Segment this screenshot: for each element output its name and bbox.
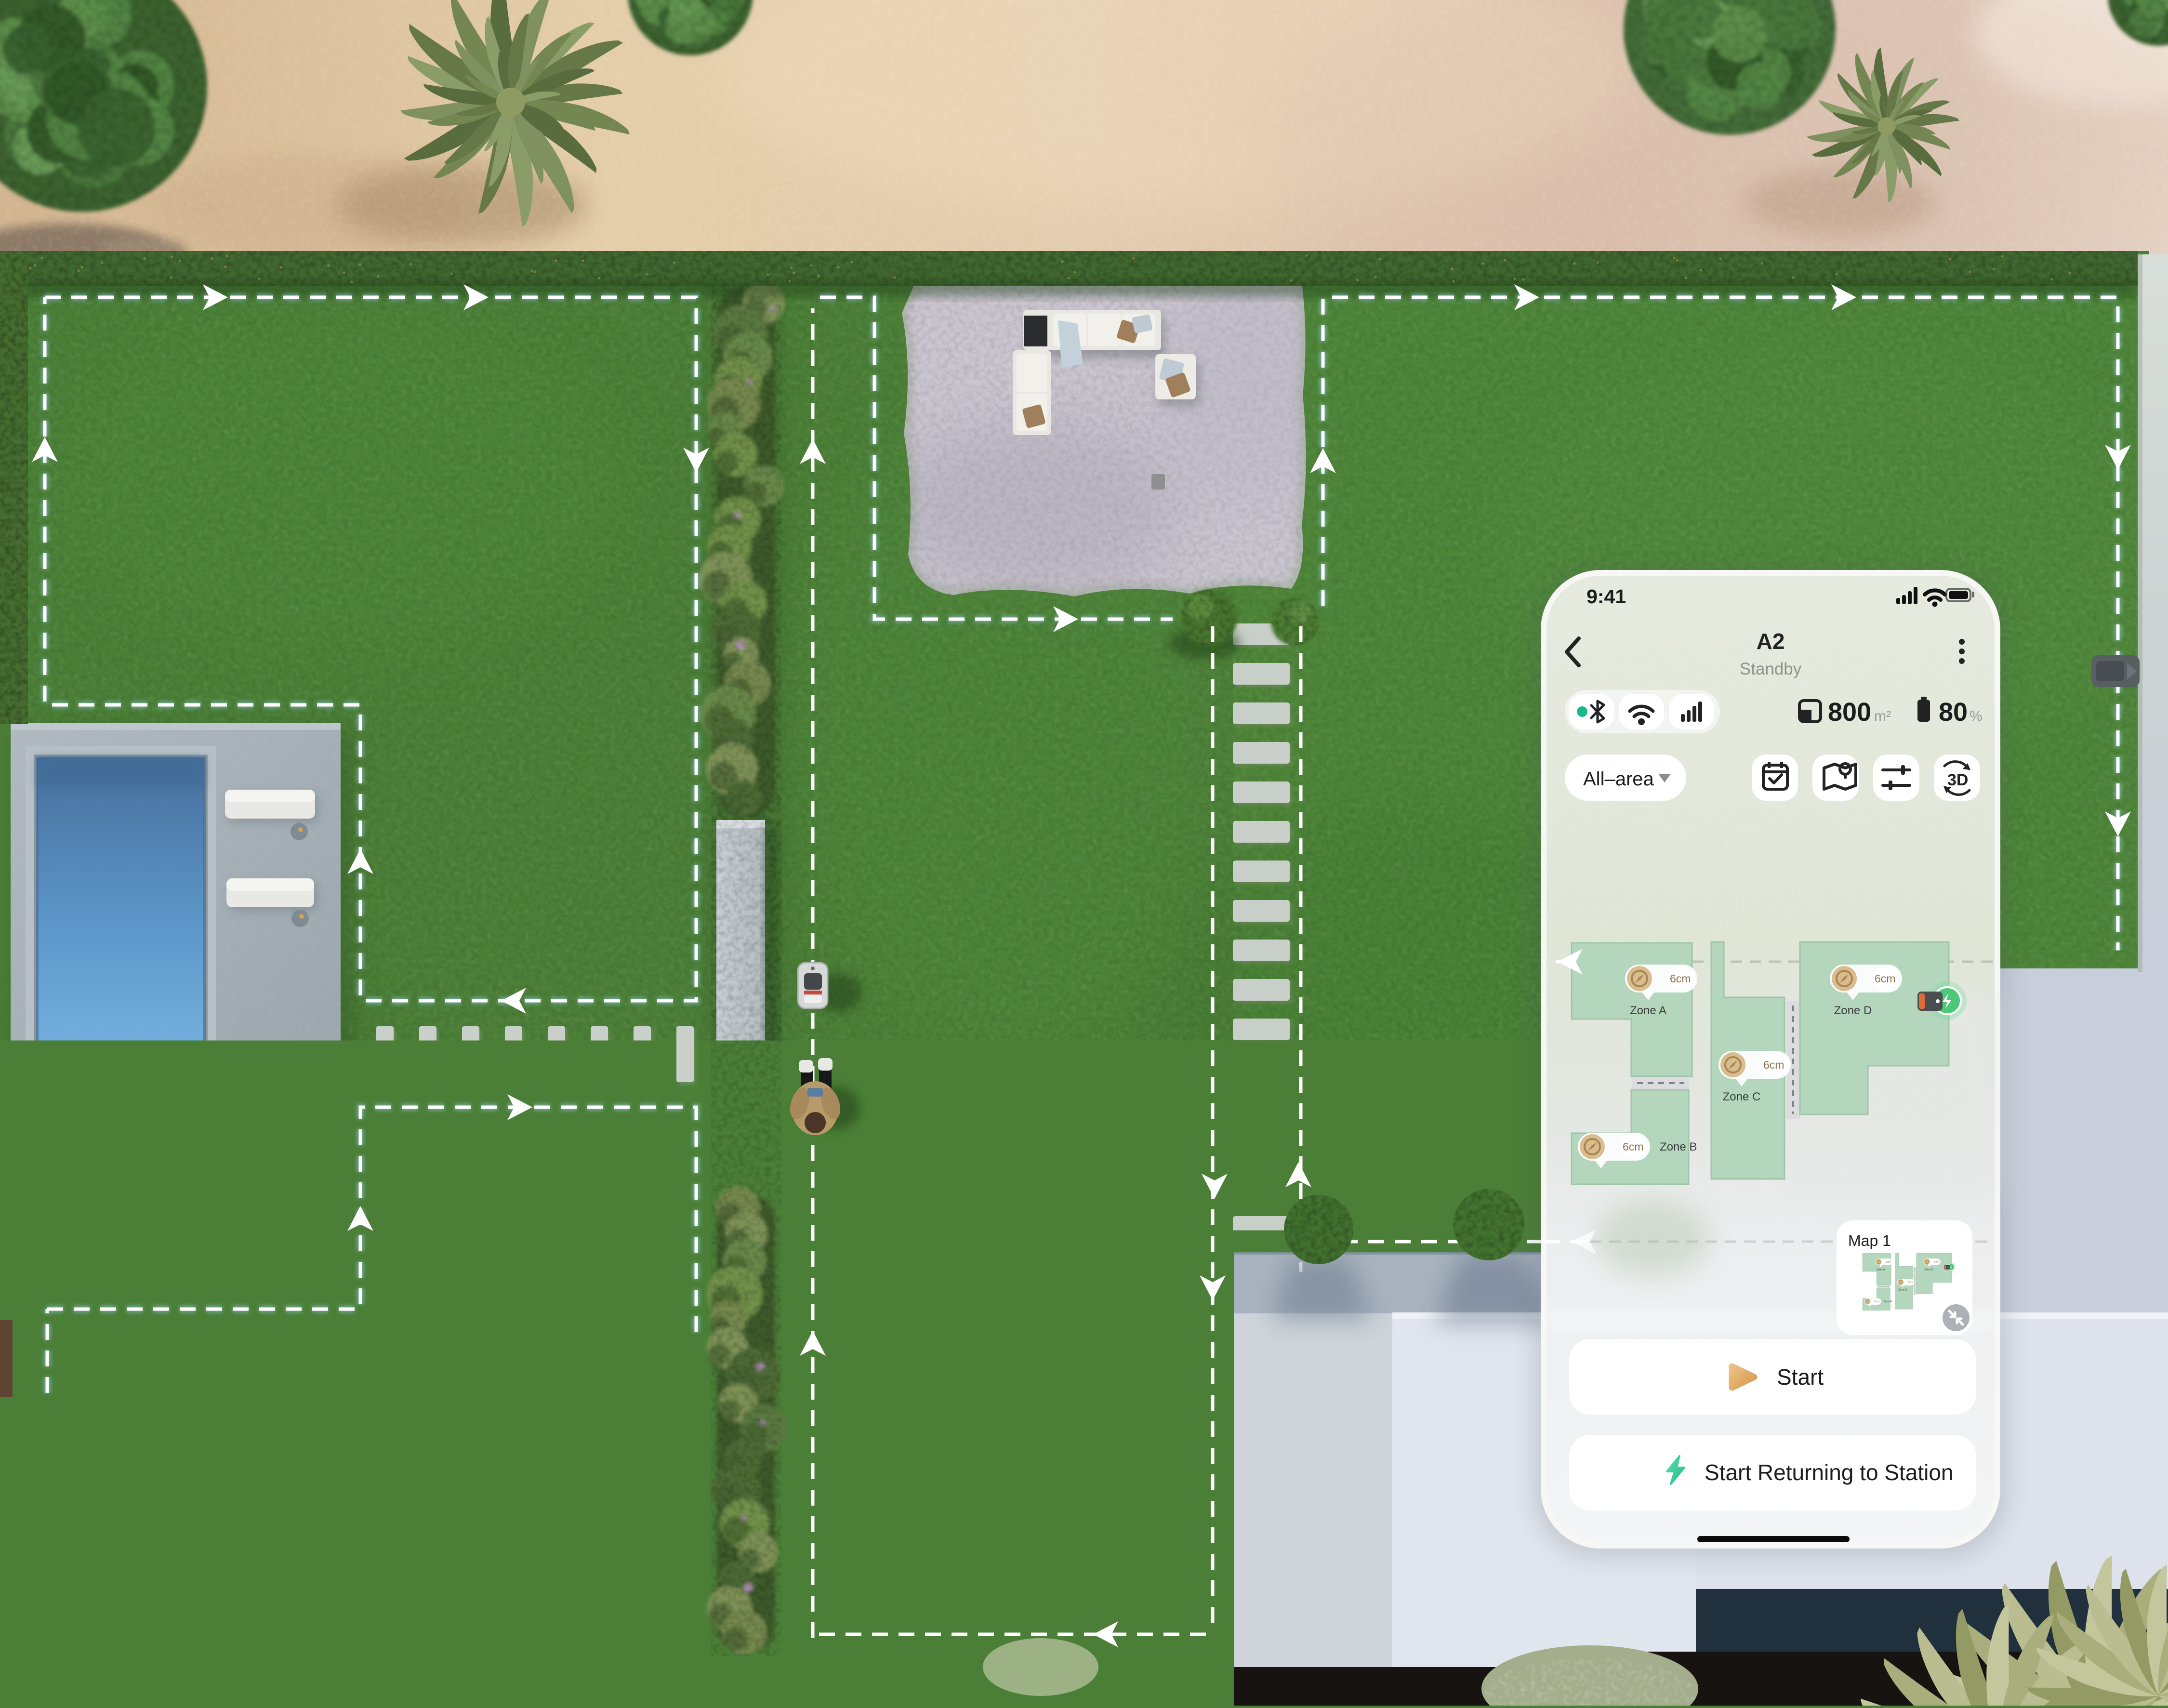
svg-text:Start Returning to Station: Start Returning to Station — [1705, 1460, 1954, 1485]
svg-text:Zone B: Zone B — [1660, 1140, 1697, 1153]
svg-text:3D: 3D — [1947, 771, 1968, 789]
svg-text:6cm: 6cm — [1763, 1059, 1784, 1071]
svg-text:Map 1: Map 1 — [1848, 1232, 1891, 1249]
svg-text:%: % — [1970, 708, 1983, 724]
svg-text:80: 80 — [1939, 698, 1968, 727]
svg-text:Zone C: Zone C — [1723, 1090, 1761, 1103]
svg-text:m²: m² — [1874, 708, 1891, 724]
svg-text:Standby: Standby — [1740, 660, 1802, 678]
svg-text:A2: A2 — [1757, 629, 1785, 654]
svg-text:All–area: All–area — [1583, 768, 1654, 790]
svg-text:9:41: 9:41 — [1586, 585, 1626, 608]
svg-text:Start: Start — [1777, 1364, 1824, 1390]
svg-text:Zone A: Zone A — [1630, 1004, 1666, 1017]
svg-text:6cm: 6cm — [1875, 972, 1895, 985]
svg-text:800: 800 — [1828, 698, 1871, 727]
svg-text:6cm: 6cm — [1670, 972, 1691, 985]
svg-text:Zone D: Zone D — [1834, 1004, 1872, 1017]
svg-text:6cm: 6cm — [1623, 1140, 1643, 1153]
